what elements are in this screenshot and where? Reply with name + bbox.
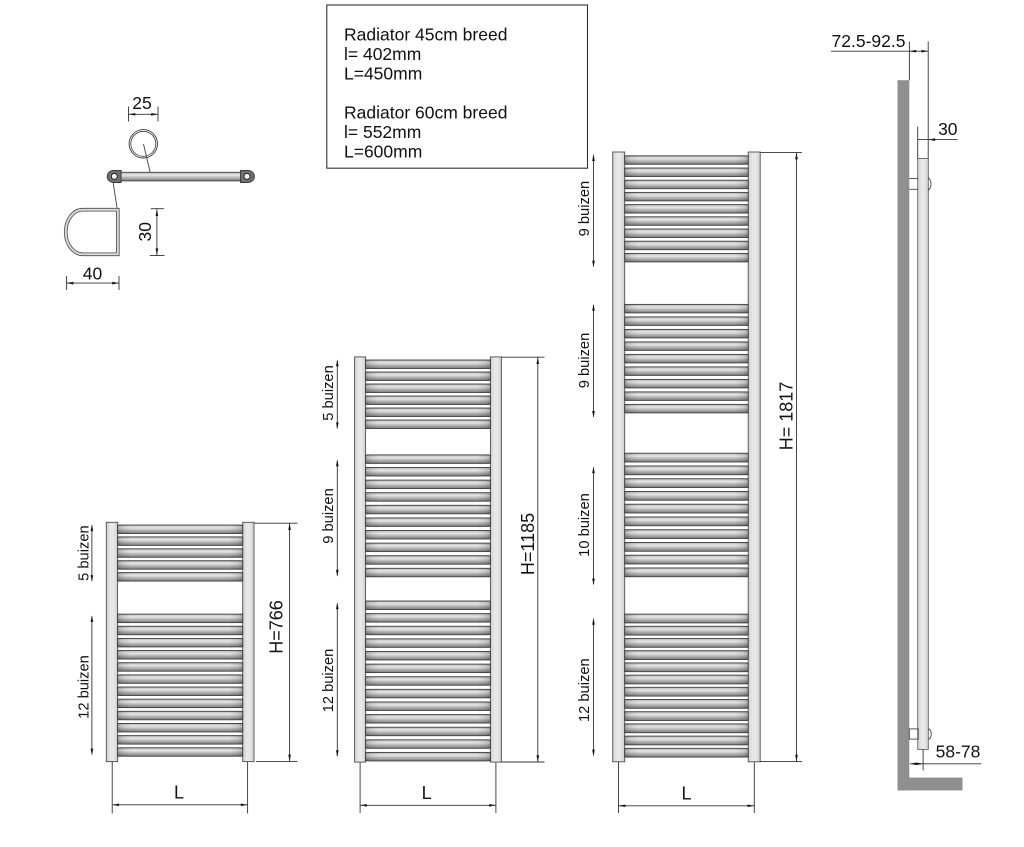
svg-text:H= 1817: H= 1817 xyxy=(777,382,797,451)
svg-text:l= 402mm: l= 402mm xyxy=(344,44,421,64)
svg-text:12 buizen: 12 buizen xyxy=(577,658,593,722)
svg-text:L=600mm: L=600mm xyxy=(344,142,422,162)
svg-text:30: 30 xyxy=(135,222,155,242)
svg-text:9 buizen: 9 buizen xyxy=(577,333,593,389)
svg-text:H=766: H=766 xyxy=(267,600,287,654)
svg-text:40: 40 xyxy=(83,264,103,284)
svg-text:5 buizen: 5 buizen xyxy=(321,365,337,421)
svg-text:9 buizen: 9 buizen xyxy=(321,488,337,544)
svg-text:L: L xyxy=(174,783,184,803)
svg-text:12 buizen: 12 buizen xyxy=(77,655,93,719)
svg-text:L=450mm: L=450mm xyxy=(344,64,422,84)
svg-text:58-78: 58-78 xyxy=(936,742,981,762)
svg-text:9 buizen: 9 buizen xyxy=(577,181,593,237)
svg-text:l= 552mm: l= 552mm xyxy=(344,122,421,142)
svg-text:72.5-92.5: 72.5-92.5 xyxy=(832,31,906,51)
svg-text:Radiator 60cm breed: Radiator 60cm breed xyxy=(344,103,507,123)
svg-text:25: 25 xyxy=(132,93,151,113)
svg-text:L: L xyxy=(422,783,432,803)
svg-text:10 buizen: 10 buizen xyxy=(577,493,593,557)
svg-text:5 buizen: 5 buizen xyxy=(77,525,93,581)
svg-text:H=1185: H=1185 xyxy=(518,513,538,575)
svg-text:Radiator 45cm breed: Radiator 45cm breed xyxy=(344,25,507,45)
svg-text:12 buizen: 12 buizen xyxy=(321,649,337,713)
svg-text:30: 30 xyxy=(938,119,958,139)
svg-text:L: L xyxy=(681,784,691,804)
